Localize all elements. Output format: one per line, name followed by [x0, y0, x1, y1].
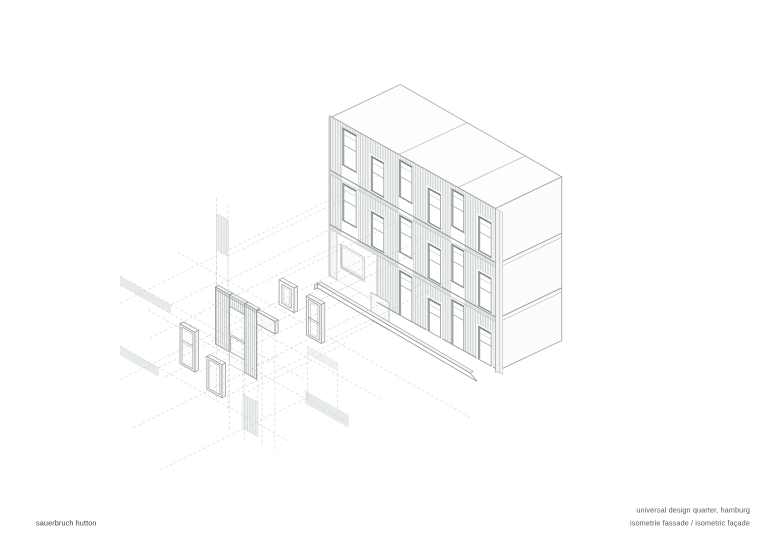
svg-text:isometrie fassade / isometric: isometrie fassade / isometric façade: [630, 519, 750, 528]
svg-text:universal design quarter, hamb: universal design quarter, hamburg: [636, 506, 750, 515]
svg-text:sauerbruch hutton: sauerbruch hutton: [36, 519, 97, 528]
